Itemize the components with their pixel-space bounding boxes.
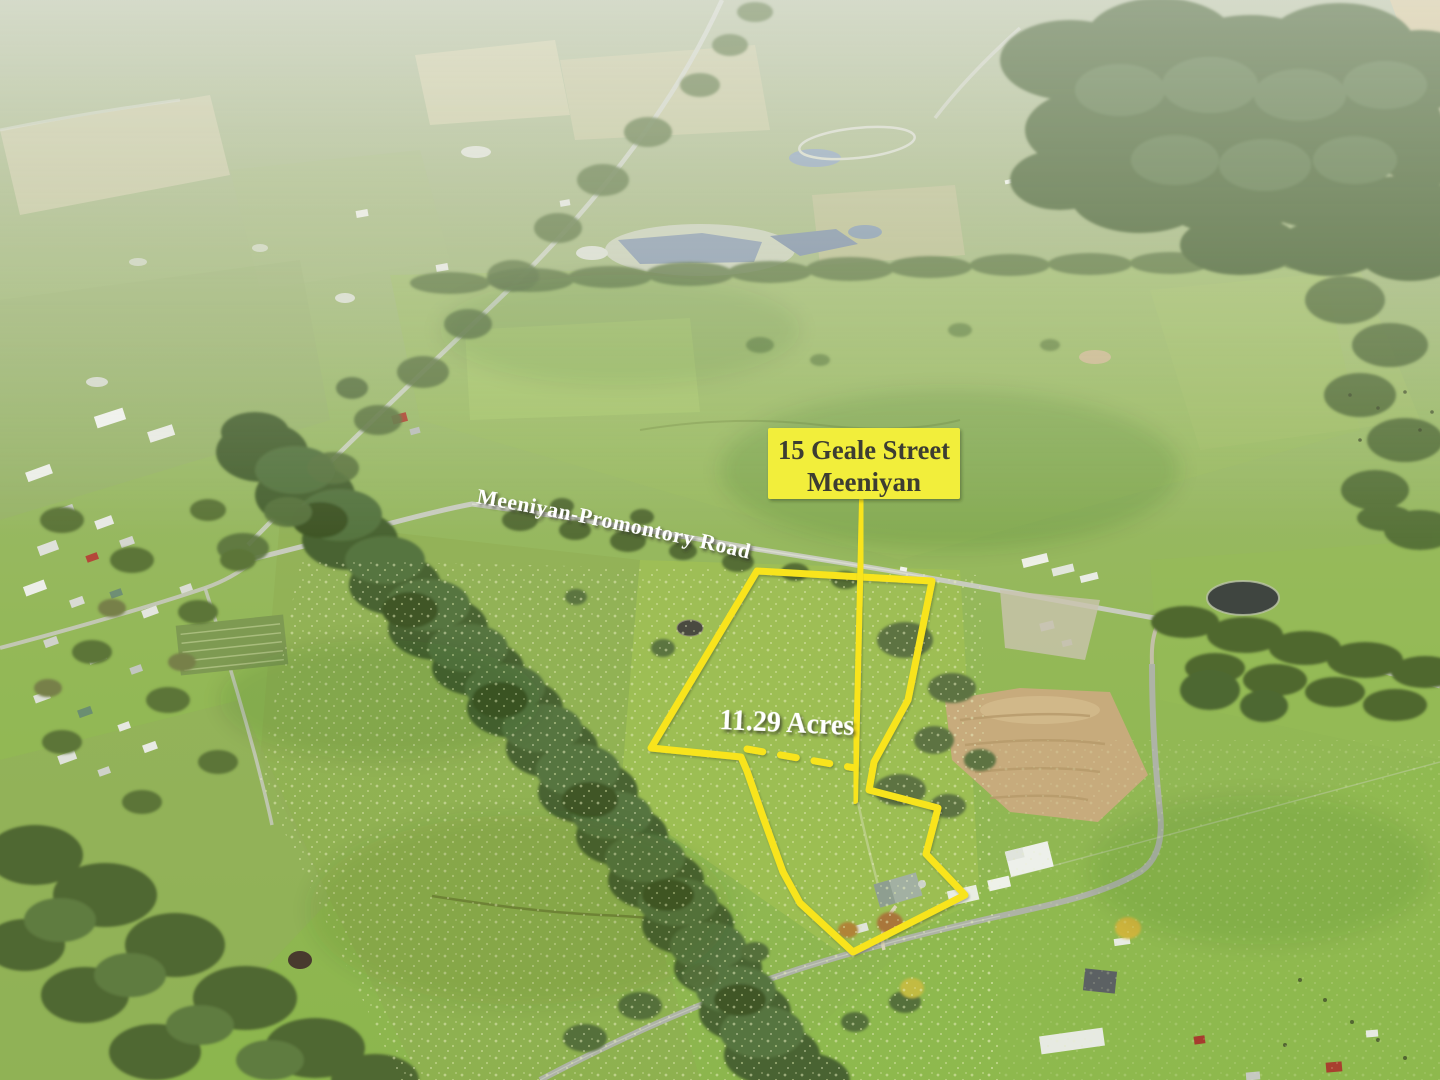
aerial-photo: 15 Geale Street Meeniyan Meeniyan-Promon… (0, 0, 1440, 1080)
address-line-1: 15 Geale Street (778, 435, 950, 465)
address-line-2: Meeniyan (807, 467, 921, 497)
property-address-label: 15 Geale Street Meeniyan (768, 428, 960, 499)
area-size-label: 11.29 Acres (719, 703, 855, 742)
